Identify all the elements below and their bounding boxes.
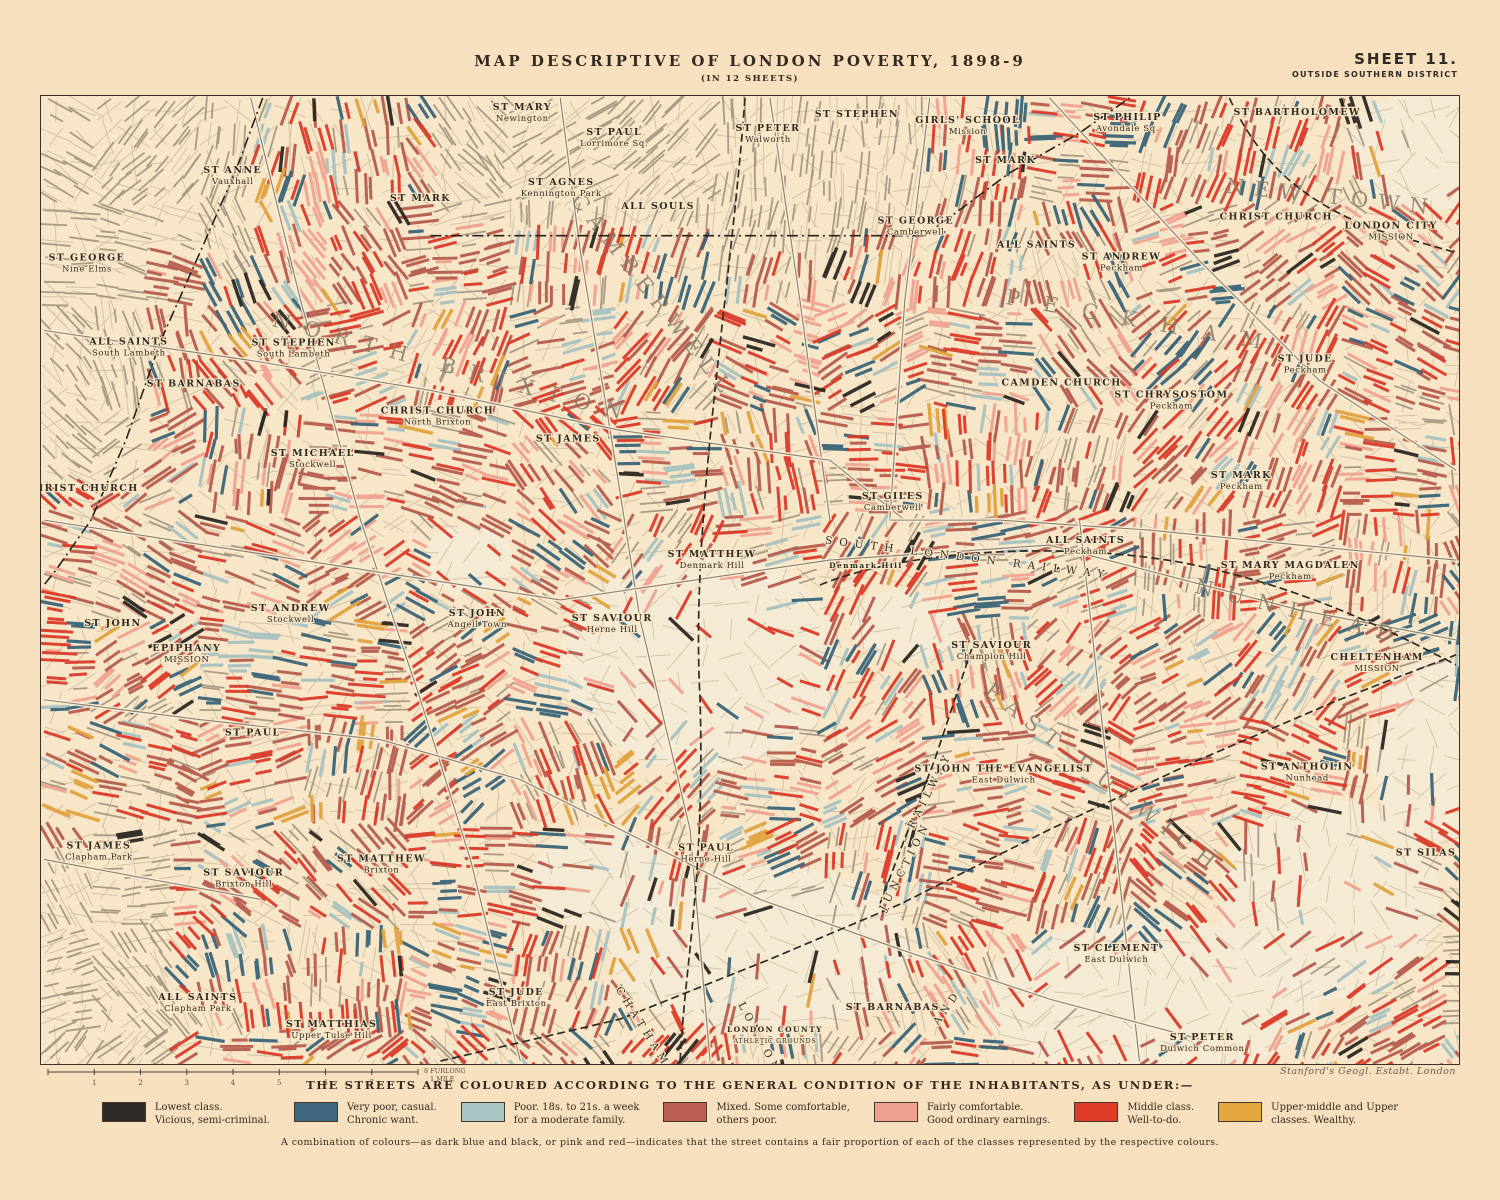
svg-text:East Dulwich: East Dulwich: [1084, 954, 1148, 964]
map-frame: NORTH BRIXTONCAMBERWELLPECKHAMNEW TOWNNU…: [40, 95, 1460, 1065]
map-label: ST JAMES: [536, 433, 601, 444]
svg-text:ST BARTHOLOMEW: ST BARTHOLOMEW: [1234, 107, 1361, 118]
svg-text:ST MARY MAGDALEN: ST MARY MAGDALEN: [1221, 560, 1360, 571]
svg-text:ST MATTHIAS: ST MATTHIAS: [286, 1019, 377, 1030]
svg-text:ST SAVIOUR: ST SAVIOUR: [572, 613, 653, 624]
svg-text:Denmark Hill: Denmark Hill: [680, 560, 745, 570]
legend-heading: THE STREETS ARE COLOURED ACCORDING TO TH…: [0, 1078, 1500, 1092]
legend-swatch: [294, 1102, 338, 1122]
map-label: ST BARTHOLOMEW: [1234, 107, 1361, 118]
svg-text:Walworth: Walworth: [745, 134, 791, 144]
svg-text:Peckham: Peckham: [1284, 364, 1327, 374]
map-label: ST BARNABAS: [846, 1002, 940, 1013]
svg-text:ST JOHN THE EVANGELIST: ST JOHN THE EVANGELIST: [915, 764, 1093, 775]
map-label: ST SAVIOURChampion Hill: [951, 640, 1032, 661]
svg-text:Peckham: Peckham: [1100, 263, 1143, 273]
map-label: ST CLEMENTEast Dulwich: [1073, 943, 1159, 964]
svg-text:Peckham: Peckham: [1220, 481, 1263, 491]
svg-text:ST SAVIOUR: ST SAVIOUR: [951, 640, 1032, 651]
svg-text:East Dulwich: East Dulwich: [972, 775, 1036, 785]
legend-swatch: [663, 1102, 707, 1122]
svg-text:ST MARY: ST MARY: [493, 102, 552, 113]
legend-row: Lowest class.Vicious, semi-criminal.Very…: [0, 1101, 1500, 1127]
svg-text:ST SILAS: ST SILAS: [1396, 847, 1457, 858]
svg-text:ST STEPHEN: ST STEPHEN: [252, 337, 336, 348]
svg-text:ST BARNABAS: ST BARNABAS: [147, 378, 241, 389]
legend-item-4: Fairly comfortable.Good ordinary earning…: [874, 1101, 1050, 1127]
legend-swatch: [1074, 1102, 1118, 1122]
legend-swatch: [461, 1102, 505, 1122]
svg-text:Kennington Park: Kennington Park: [521, 188, 602, 198]
svg-text:Peckham: Peckham: [1150, 400, 1193, 410]
legend-item-6: Upper-middle and Upperclasses. Wealthy.: [1218, 1101, 1398, 1127]
svg-text:Newington: Newington: [496, 113, 549, 123]
svg-text:CHELTENHAM: CHELTENHAM: [1330, 652, 1423, 663]
svg-text:Avondale Sq.: Avondale Sq.: [1095, 123, 1159, 133]
svg-text:ST JAMES: ST JAMES: [536, 433, 601, 444]
map-label: ST GILESCamberwell: [862, 491, 924, 512]
page-subtitle: (IN 12 SHEETS): [0, 74, 1500, 84]
svg-text:ST GEORGE: ST GEORGE: [49, 253, 126, 264]
map-label: ST PAULLorrimore Sq.: [580, 127, 648, 148]
map-label: CHRIST CHURCH: [41, 483, 139, 494]
legend-item-1: Very poor, casual.Chronic want.: [294, 1101, 437, 1127]
svg-text:Herne Hill: Herne Hill: [680, 853, 731, 863]
district-label: OUTSIDE SOUTHERN DISTRICT: [1292, 70, 1458, 79]
map-label: ST MARKPeckham: [1211, 470, 1272, 491]
map-label: ST JOHNAngell Town: [447, 608, 508, 629]
svg-text:ST JAMES: ST JAMES: [67, 840, 132, 851]
legend-item-5: Middle class.Well-to-do.: [1074, 1101, 1194, 1127]
map-label: ST JUDEEast Brixton: [486, 987, 547, 1008]
map-label: ST JOHN: [84, 618, 141, 629]
svg-text:South Lambeth: South Lambeth: [257, 348, 331, 358]
svg-text:ST MARK: ST MARK: [390, 193, 451, 204]
map-canvas: NORTH BRIXTONCAMBERWELLPECKHAMNEW TOWNNU…: [41, 96, 1459, 1064]
svg-text:ST STEPHEN: ST STEPHEN: [815, 109, 899, 120]
map-label: ST JUDEPeckham: [1278, 353, 1333, 374]
map-label: ST MATTHEWDenmark Hill: [668, 549, 757, 570]
svg-text:ALL SOULS: ALL SOULS: [620, 201, 694, 212]
svg-text:Champion Hill: Champion Hill: [957, 651, 1027, 661]
svg-text:CHRIST CHURCH: CHRIST CHURCH: [381, 405, 494, 416]
svg-text:ST PAUL: ST PAUL: [225, 728, 281, 739]
svg-text:ST AGNES: ST AGNES: [528, 177, 595, 188]
svg-text:Camberwell: Camberwell: [887, 227, 945, 237]
poverty-map-page: MAP DESCRIPTIVE OF LONDON POVERTY, 1898-…: [0, 0, 1500, 1200]
legend-item-label: Upper-middle and Upperclasses. Wealthy.: [1271, 1101, 1398, 1127]
map-label: ST PETERWalworth: [736, 123, 801, 144]
map-label: ST JAMESClapham Park: [65, 840, 133, 861]
map-label: ALL SOULS: [620, 201, 694, 212]
legend-swatch: [102, 1102, 146, 1122]
legend-item-0: Lowest class.Vicious, semi-criminal.: [102, 1101, 270, 1127]
svg-text:ST ANDREW: ST ANDREW: [251, 603, 331, 614]
svg-text:ST PAUL: ST PAUL: [586, 127, 642, 138]
svg-text:Denmark Hill: Denmark Hill: [829, 561, 902, 570]
svg-text:CHRIST CHURCH: CHRIST CHURCH: [1220, 212, 1333, 223]
svg-text:Stockwell: Stockwell: [267, 614, 314, 624]
printer-credit: Stanford's Geogl. Estabt. London: [1280, 1066, 1456, 1077]
svg-text:ALL SAINTS: ALL SAINTS: [996, 240, 1076, 251]
map-label: ST SILAS: [1396, 847, 1457, 858]
map-label: ALL SAINTS: [996, 240, 1076, 251]
svg-text:Dulwich Common: Dulwich Common: [1160, 1043, 1244, 1053]
legend-item-label: Very poor, casual.Chronic want.: [347, 1101, 437, 1127]
svg-text:ST GILES: ST GILES: [862, 491, 924, 502]
svg-text:North Brixton: North Brixton: [404, 416, 472, 426]
svg-text:ST SAVIOUR: ST SAVIOUR: [203, 867, 284, 878]
map-label: ST STEPHEN: [815, 109, 899, 120]
svg-text:ALL SAINTS: ALL SAINTS: [157, 992, 237, 1003]
svg-text:ST JUDE: ST JUDE: [1278, 353, 1333, 364]
map-label: ALL SAINTSSouth Lambeth: [88, 336, 168, 357]
svg-text:ST JOHN: ST JOHN: [84, 618, 141, 629]
map-label: ST MARYNewington: [493, 102, 552, 123]
svg-text:MISSION: MISSION: [1354, 663, 1399, 673]
svg-text:Clapham Park: Clapham Park: [65, 851, 133, 861]
map-label: ST STEPHENSouth Lambeth: [252, 337, 336, 358]
svg-text:East Brixton: East Brixton: [486, 998, 547, 1008]
legend-item-label: Mixed. Some comfortable,others poor.: [716, 1101, 850, 1127]
map-label: ST AGNESKennington Park: [521, 177, 602, 198]
svg-text:LONDON CITY: LONDON CITY: [1345, 221, 1438, 232]
map-label: CAMDEN CHURCH: [1002, 377, 1122, 388]
legend-item-label: Fairly comfortable.Good ordinary earning…: [927, 1101, 1050, 1127]
map-label: ST BARNABAS: [147, 378, 241, 389]
svg-text:Nine Elms: Nine Elms: [62, 264, 112, 274]
svg-text:8 FURLONGS: 8 FURLONGS: [424, 1068, 466, 1075]
svg-text:ST CHRYSOSTOM: ST CHRYSOSTOM: [1114, 389, 1228, 400]
legend-item-label: Poor. 18s. to 21s. a weekfor a moderate …: [514, 1101, 640, 1127]
map-label: ST PAUL: [225, 728, 281, 739]
map-label: ST PHILIPAvondale Sq.: [1093, 112, 1161, 133]
svg-text:ST ANNE: ST ANNE: [203, 165, 262, 176]
map-label: Denmark Hill: [829, 561, 902, 570]
svg-text:ST MARK: ST MARK: [975, 155, 1036, 166]
svg-text:EPIPHANY: EPIPHANY: [152, 643, 221, 654]
svg-text:CHRIST CHURCH: CHRIST CHURCH: [41, 483, 139, 494]
legend-swatch: [874, 1102, 918, 1122]
svg-text:ST PHILIP: ST PHILIP: [1093, 112, 1161, 123]
svg-text:ST CLEMENT: ST CLEMENT: [1073, 943, 1159, 954]
svg-text:ST ANDREW: ST ANDREW: [1082, 252, 1162, 263]
svg-text:Angell Town: Angell Town: [447, 619, 508, 629]
legend-item-3: Mixed. Some comfortable,others poor.: [663, 1101, 850, 1127]
svg-text:Nunhead: Nunhead: [1285, 773, 1328, 783]
legend: THE STREETS ARE COLOURED ACCORDING TO TH…: [0, 1078, 1500, 1148]
legend-item-2: Poor. 18s. to 21s. a weekfor a moderate …: [461, 1101, 640, 1127]
svg-text:ST ANTHOLIN: ST ANTHOLIN: [1261, 762, 1354, 773]
map-label: ST MARK: [975, 155, 1036, 166]
map-label: ST GEORGECamberwell: [878, 216, 955, 237]
svg-text:Peckham: Peckham: [1064, 546, 1107, 556]
svg-text:ST GEORGE: ST GEORGE: [878, 216, 955, 227]
svg-text:MISSION: MISSION: [164, 654, 209, 664]
svg-text:ST JUDE: ST JUDE: [489, 987, 544, 998]
svg-text:ST BARNABAS: ST BARNABAS: [846, 1002, 940, 1013]
legend-item-label: Middle class.Well-to-do.: [1127, 1101, 1194, 1127]
svg-text:ATHLETIC GROUNDS: ATHLETIC GROUNDS: [733, 1037, 817, 1045]
svg-text:Camberwell: Camberwell: [864, 502, 922, 512]
map-label: ST SAVIOURBrixton Hill: [203, 867, 284, 888]
svg-text:ST JOHN: ST JOHN: [449, 608, 506, 619]
legend-swatch: [1218, 1102, 1262, 1122]
svg-text:Vauxhall: Vauxhall: [211, 176, 253, 186]
svg-text:Lorrimore Sq.: Lorrimore Sq.: [580, 138, 648, 148]
svg-text:Stockwell: Stockwell: [289, 459, 336, 469]
map-label: ST PETERDulwich Common: [1160, 1032, 1244, 1053]
svg-text:Herne Hill: Herne Hill: [587, 624, 638, 634]
svg-text:ALL SAINTS: ALL SAINTS: [1045, 535, 1125, 546]
map-label: ST ANNEVauxhall: [203, 165, 262, 186]
svg-text:LONDON COUNTY: LONDON COUNTY: [727, 1025, 823, 1034]
svg-text:MISSION: MISSION: [1368, 232, 1413, 242]
page-title: MAP DESCRIPTIVE OF LONDON POVERTY, 1898-…: [0, 52, 1500, 70]
sheet-number: SHEET 11.: [1354, 50, 1458, 68]
svg-text:Brixton Hill: Brixton Hill: [215, 878, 272, 888]
map-label: ST MARK: [390, 193, 451, 204]
svg-text:ST PAUL: ST PAUL: [678, 842, 734, 853]
svg-text:South Lambeth: South Lambeth: [92, 347, 166, 357]
map-label: ST PAULHerne Hill: [678, 842, 734, 863]
svg-text:ALL SAINTS: ALL SAINTS: [88, 336, 168, 347]
svg-text:ST MARK: ST MARK: [1211, 470, 1272, 481]
svg-text:Brixton: Brixton: [364, 864, 400, 874]
svg-text:Peckham: Peckham: [1269, 571, 1312, 581]
svg-text:GIRLS' SCHOOL: GIRLS' SCHOOL: [915, 115, 1020, 126]
svg-text:CAMDEN CHURCH: CAMDEN CHURCH: [1002, 377, 1122, 388]
svg-text:ST MATTHEW: ST MATTHEW: [337, 853, 426, 864]
svg-text:Clapham Park: Clapham Park: [164, 1003, 232, 1013]
map-label: ST MATTHIASUpper Tulse Hill: [286, 1019, 377, 1040]
svg-text:ST MATTHEW: ST MATTHEW: [668, 549, 757, 560]
map-label: ALL SAINTSClapham Park: [157, 992, 237, 1013]
svg-text:Upper Tulse Hill: Upper Tulse Hill: [291, 1030, 372, 1040]
svg-text:ST MICHAEL: ST MICHAEL: [271, 448, 355, 459]
legend-note: A combination of colours—as dark blue an…: [0, 1137, 1500, 1148]
map-label: CHRIST CHURCH: [1220, 212, 1333, 223]
svg-text:Mission: Mission: [949, 126, 987, 136]
legend-item-label: Lowest class.Vicious, semi-criminal.: [155, 1101, 270, 1127]
svg-text:ST PETER: ST PETER: [736, 123, 801, 134]
svg-text:ST PETER: ST PETER: [1170, 1032, 1235, 1043]
